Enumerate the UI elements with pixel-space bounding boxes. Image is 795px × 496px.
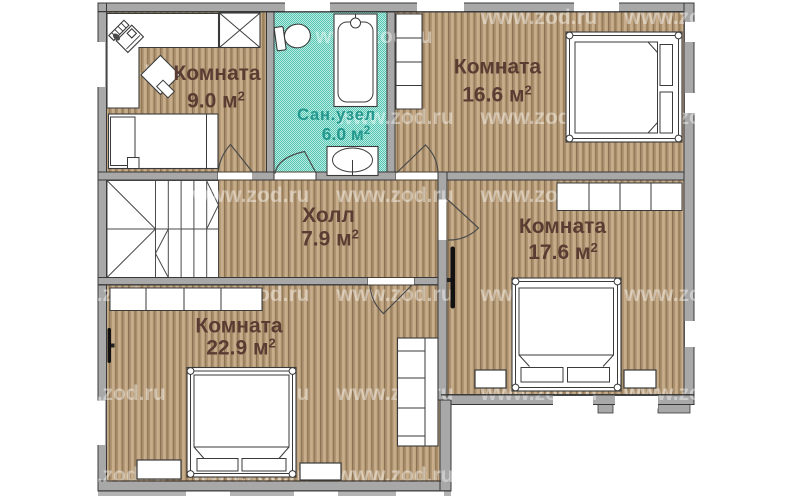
svg-text:9.0 м2: 9.0 м2	[187, 89, 245, 113]
svg-text:Холл: Холл	[302, 204, 355, 227]
svg-text:www.zod.ru: www.zod.ru	[335, 464, 453, 487]
svg-text:22.9 м2: 22.9 м2	[206, 336, 275, 360]
svg-text:6.0 м2: 6.0 м2	[322, 124, 371, 144]
svg-text:www.zod.ru: www.zod.ru	[623, 6, 741, 29]
svg-text:Комната: Комната	[519, 215, 607, 238]
svg-text:Комната: Комната	[195, 315, 283, 338]
svg-text:www.zod.ru: www.zod.ru	[191, 184, 309, 207]
svg-text:Комната: Комната	[454, 56, 542, 79]
svg-text:Комната: Комната	[173, 62, 261, 85]
svg-text:Сан.узел: Сан.узел	[297, 106, 376, 124]
svg-text:17.6 м2: 17.6 м2	[528, 240, 597, 264]
svg-text:16.6 м2: 16.6 м2	[462, 83, 531, 107]
svg-text:www.zod.ru: www.zod.ru	[623, 283, 741, 306]
svg-text:7.9 м2: 7.9 м2	[301, 227, 359, 251]
